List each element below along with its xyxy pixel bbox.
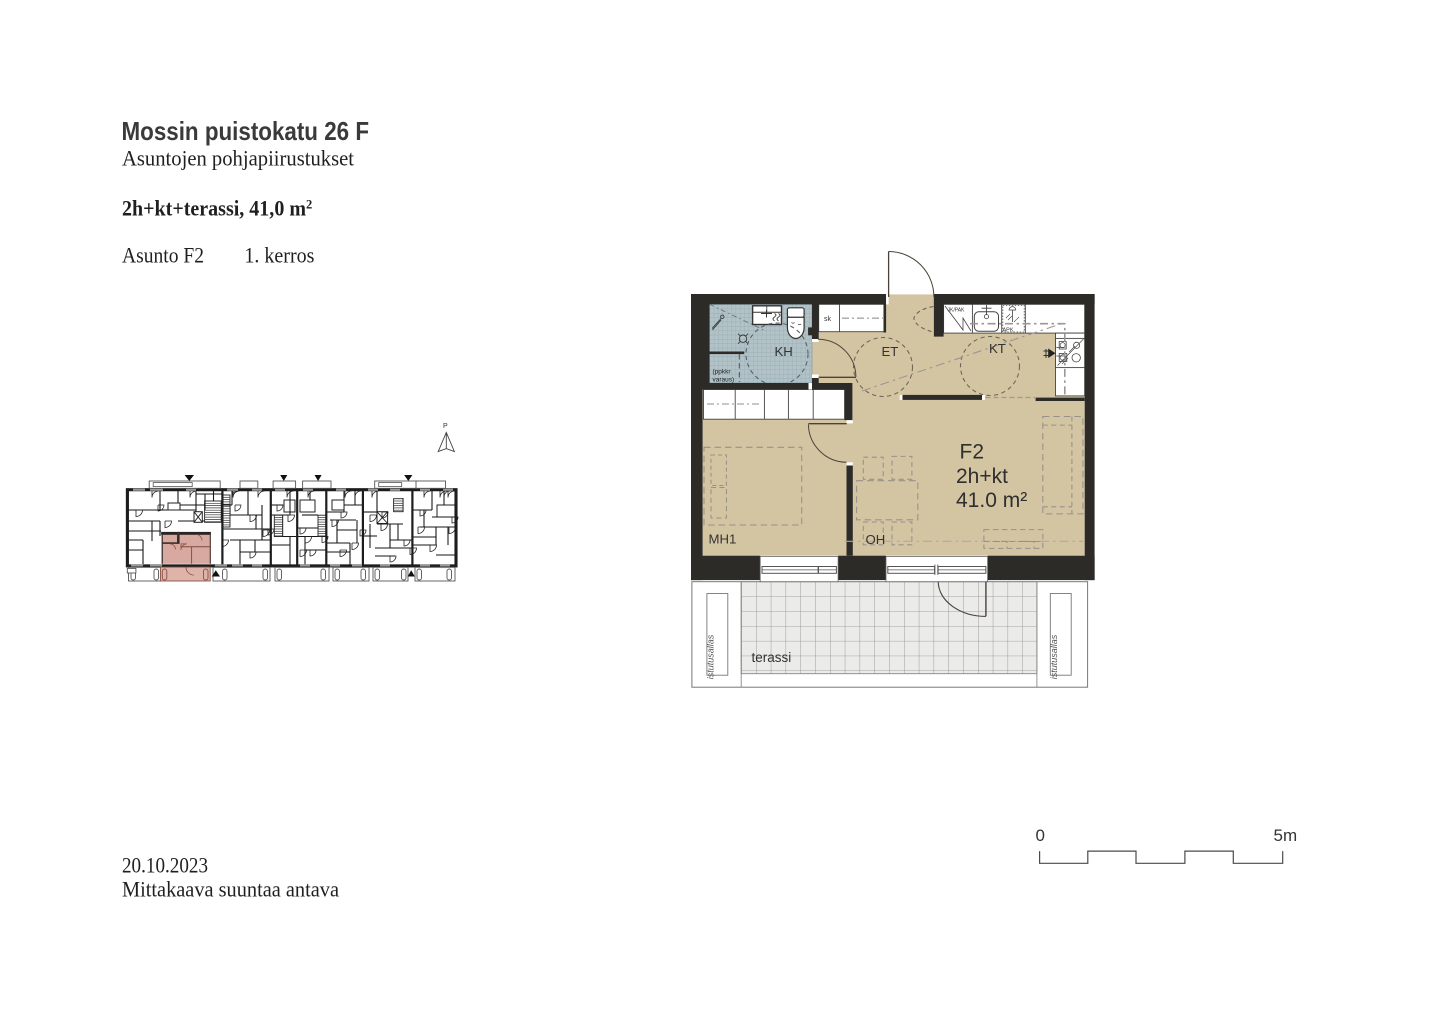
- svg-text:ET: ET: [882, 344, 899, 359]
- svg-text:APK: APK: [1003, 328, 1014, 334]
- svg-text:5m: 5m: [1274, 826, 1298, 845]
- svg-text:istutusallas: istutusallas: [706, 634, 716, 679]
- svg-text:Mittakaava suuntaa antava: Mittakaava suuntaa antava: [122, 877, 339, 902]
- svg-text:2h+kt: 2h+kt: [956, 465, 1008, 488]
- svg-text:2h+kt+terassi, 41,0 m: 2h+kt+terassi, 41,0 m: [122, 195, 306, 220]
- svg-text:(ppkkr: (ppkkr: [713, 369, 732, 376]
- svg-text:Asuntojen pohjapiirustukset: Asuntojen pohjapiirustukset: [122, 146, 354, 171]
- svg-text:KT: KT: [989, 341, 1006, 356]
- svg-text:Asunto F2: Asunto F2: [122, 243, 204, 268]
- svg-text:istutusallas: istutusallas: [1049, 634, 1059, 679]
- svg-text:41.0 m²: 41.0 m²: [956, 489, 1027, 512]
- svg-text:1. kerros: 1. kerros: [244, 243, 314, 268]
- svg-text:KH: KH: [775, 344, 793, 359]
- svg-text:sk: sk: [824, 316, 832, 323]
- svg-text:terassi: terassi: [752, 650, 792, 665]
- svg-text:JK/PAK: JK/PAK: [948, 308, 966, 314]
- svg-text:MH1: MH1: [709, 532, 737, 547]
- svg-text:varaus): varaus): [713, 377, 735, 384]
- svg-text:20.10.2023: 20.10.2023: [122, 853, 208, 878]
- svg-text:Mossin puistokatu 26 F: Mossin puistokatu 26 F: [122, 116, 370, 146]
- svg-text:F2: F2: [960, 441, 985, 464]
- svg-text:OH: OH: [866, 532, 886, 547]
- svg-text:2: 2: [306, 198, 312, 212]
- svg-text:P: P: [443, 423, 448, 430]
- svg-text:0: 0: [1036, 826, 1045, 845]
